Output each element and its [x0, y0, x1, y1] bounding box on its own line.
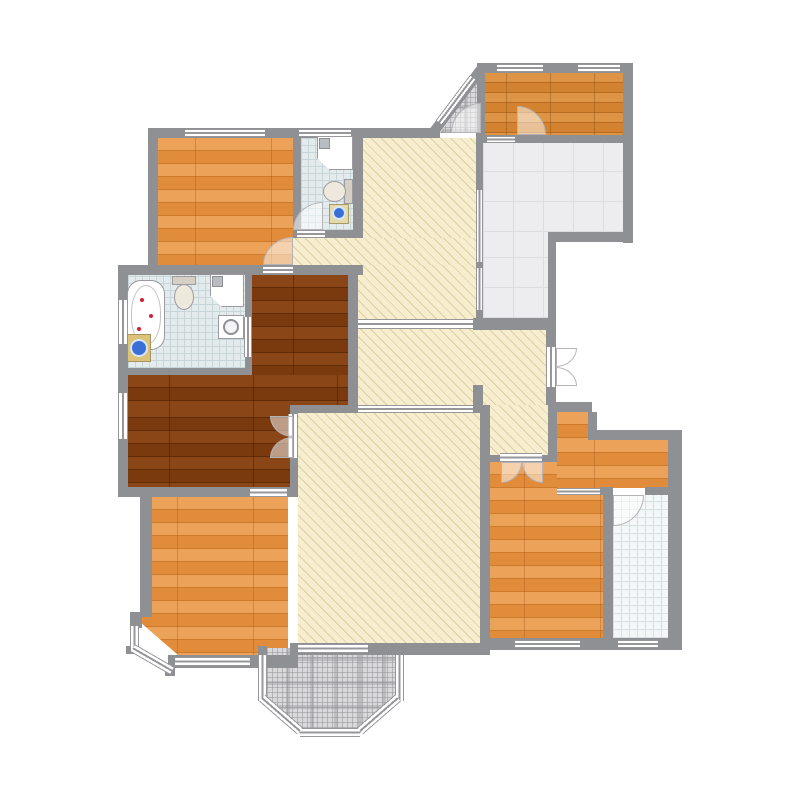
washbasin-bowl-icon [223, 319, 239, 335]
wall [480, 405, 490, 650]
window [515, 640, 580, 648]
window [618, 640, 658, 648]
window [185, 129, 265, 137]
room-living-room [298, 413, 480, 643]
washer-drum-icon [130, 339, 148, 357]
room-middle-hall [358, 329, 546, 405]
room-upper-hall-lower [358, 265, 476, 319]
shower-head-icon [319, 138, 330, 149]
door-swing-french-top [556, 348, 577, 367]
wall [542, 455, 557, 462]
wall [348, 265, 358, 413]
room-terrace-lower [483, 232, 548, 318]
room-master-bedroom-a [252, 275, 348, 375]
room-bedroom-bottom-left [140, 497, 288, 655]
room-corridor [490, 405, 548, 455]
petal-icon [140, 298, 144, 302]
window [175, 657, 250, 666]
room-terrace-upper [483, 143, 623, 232]
opening-bedroom4-dressing [557, 488, 600, 495]
window [118, 393, 128, 439]
window [476, 268, 483, 310]
room-kitchen [485, 73, 623, 135]
shower-head-icon [212, 276, 223, 287]
window [476, 190, 483, 262]
room-master-bedroom-b [128, 375, 348, 405]
toilet-bowl-icon [323, 181, 346, 202]
door-swing-french-bottom [556, 367, 577, 386]
wall [592, 430, 670, 440]
wall [353, 133, 363, 230]
door-opening [500, 453, 542, 462]
wall [668, 497, 682, 650]
room-upper-hall [363, 138, 476, 238]
wall [600, 487, 613, 495]
wall [623, 63, 633, 243]
petal-icon [137, 327, 141, 331]
wall [548, 232, 556, 330]
washer-drum-icon [332, 206, 346, 220]
floor-plan-canvas [0, 0, 800, 800]
opening-living-bay [298, 644, 368, 653]
wall [128, 368, 252, 375]
wall [645, 487, 682, 495]
door-opening [297, 230, 325, 238]
room-dressing-corridor-stub [557, 412, 588, 440]
door-opening [487, 136, 515, 143]
room-dressing-corridor [557, 440, 668, 488]
opening-hall-upper [358, 319, 473, 329]
window [497, 64, 543, 72]
toilet-bowl-icon [174, 284, 194, 310]
window [395, 655, 404, 701]
wall [476, 318, 556, 330]
opening-hall-living [358, 405, 473, 413]
wall [290, 405, 358, 413]
window [578, 64, 620, 72]
room-master-bedroom-c [128, 405, 290, 487]
wall [487, 455, 500, 462]
window [299, 129, 351, 137]
opening-ensuite [244, 317, 252, 357]
petal-icon [149, 314, 153, 318]
room-upper-hall-nook [293, 238, 476, 265]
wall [548, 232, 633, 242]
wall [603, 495, 613, 638]
window [258, 655, 267, 701]
opening-master-bedroom3 [250, 488, 287, 497]
wall [140, 497, 152, 617]
window [300, 728, 360, 737]
door-opening [263, 266, 293, 274]
door-opening-french [546, 347, 556, 387]
wall [118, 265, 363, 275]
wall [148, 128, 158, 275]
